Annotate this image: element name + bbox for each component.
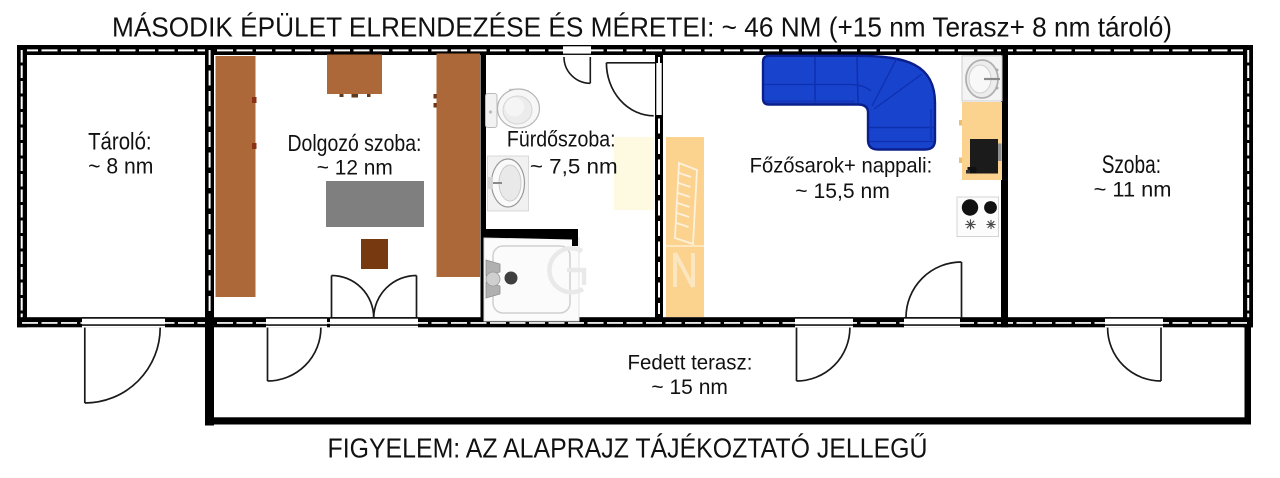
svg-text:~ 12 nm: ~ 12 nm <box>317 155 393 179</box>
svg-text:~ 15 nm: ~ 15 nm <box>651 375 728 399</box>
svg-text:MÁSODIK ÉPÜLET ELRENDEZÉSE ÉS: MÁSODIK ÉPÜLET ELRENDEZÉSE ÉS MÉRETEI: ~… <box>112 11 1172 43</box>
svg-text:~ 11 nm: ~ 11 nm <box>1094 179 1172 202</box>
svg-text:~ 8 nm: ~ 8 nm <box>88 154 153 179</box>
svg-text:Szoba:: Szoba: <box>1102 151 1161 179</box>
svg-text:FIGYELEM: AZ ALAPRAJZ TÁJÉKOZT: FIGYELEM: AZ ALAPRAJZ TÁJÉKOZTATÓ JELLEG… <box>328 433 928 464</box>
svg-text:Tároló:: Tároló: <box>88 129 152 156</box>
svg-text:~ 7,5 nm: ~ 7,5 nm <box>530 154 618 178</box>
svg-text:~ 15,5 nm: ~ 15,5 nm <box>795 180 890 203</box>
svg-text:Fedett terasz:: Fedett terasz: <box>628 351 753 375</box>
svg-text:Fürdőszoba:: Fürdőszoba: <box>507 126 616 151</box>
svg-text:Főzősarok+ nappali:: Főzősarok+ nappali: <box>750 154 933 177</box>
svg-text:Dolgozó szoba:: Dolgozó szoba: <box>288 130 422 156</box>
